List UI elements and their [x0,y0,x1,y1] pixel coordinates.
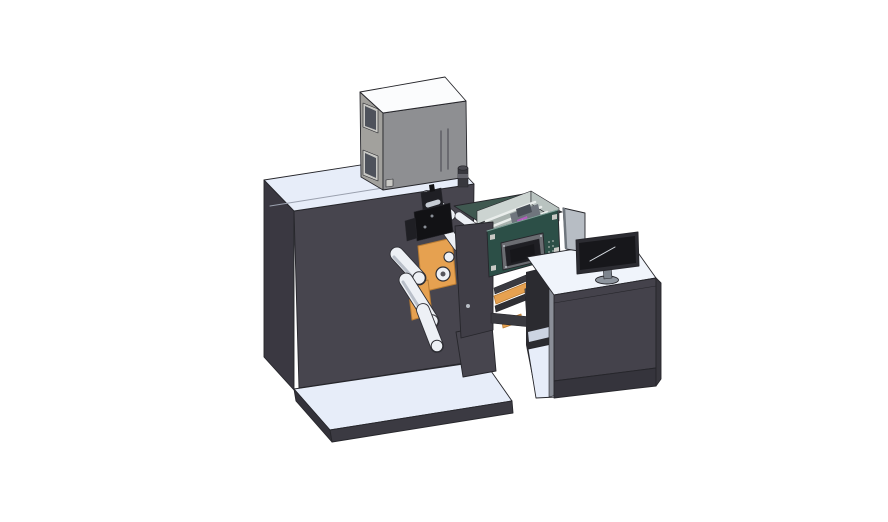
desk-front-face [554,278,656,381]
panel-corner-tab [490,234,495,240]
display-screw [503,245,505,247]
panel-vent-dot [548,241,550,243]
panel-vent-dot [552,245,554,247]
print-head-top-fitting [429,184,435,192]
knob-band [458,174,468,178]
cad-render-canvas [0,0,888,522]
roller-end-cap [431,340,443,352]
print-head-knob-dot [431,215,434,218]
knob-top-cap [458,166,468,170]
spindle-hub [441,272,446,277]
print-head-side-block [405,218,417,241]
frame-plate-bolt [466,304,470,308]
panel-vent-dot [552,250,554,252]
silver-shaft [428,202,438,205]
beacon-knob [458,166,468,187]
panel-corner-tab [491,265,496,271]
desk-right-face [656,278,661,386]
panel-corner-tab [552,214,557,220]
electrical-control-box [360,77,467,190]
display-screw [540,235,542,237]
machine-assembly-drawing [0,0,888,522]
display-screw [505,266,507,268]
front-access-square [386,179,393,187]
control-box-front-face [383,101,467,190]
print-head-knob-dot [424,226,427,229]
panel-vent-dot [552,240,554,242]
small-roller-end-on [444,252,454,262]
panel-vent-dot [548,251,550,253]
panel-vent-dot [548,246,550,248]
machine-left-face [264,180,294,390]
